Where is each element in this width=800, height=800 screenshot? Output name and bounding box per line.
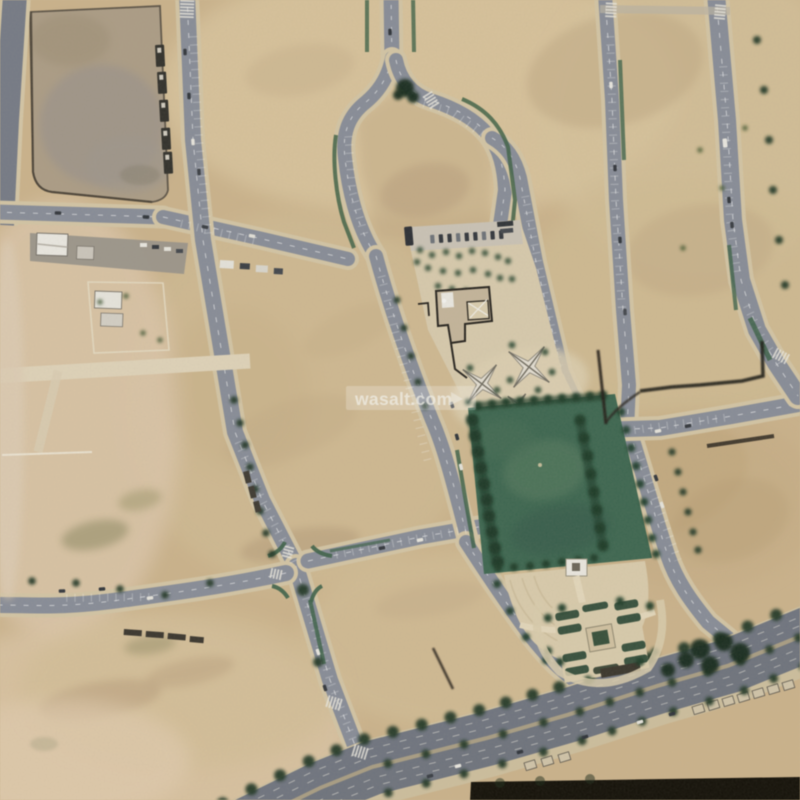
svg-text:wasalt.com: wasalt.com: [354, 389, 452, 409]
